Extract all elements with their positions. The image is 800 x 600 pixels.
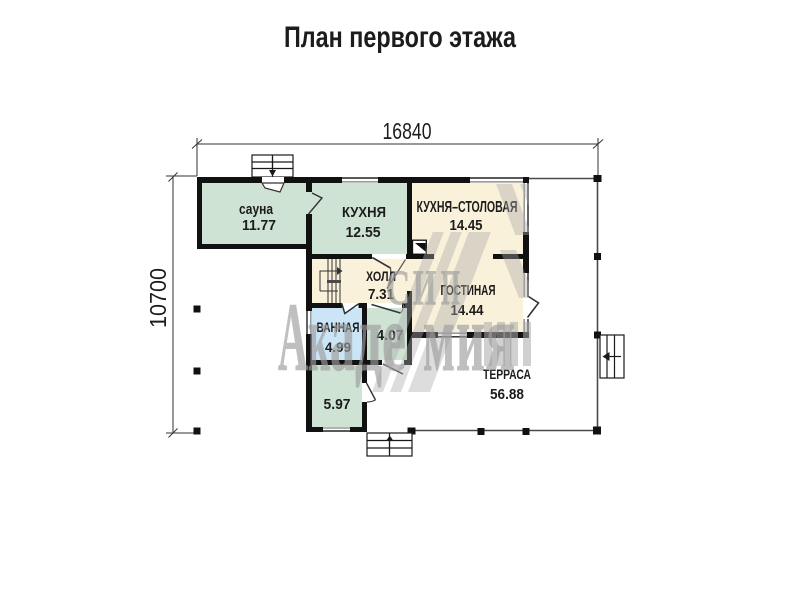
svg-text:КУХНЯ–СТОЛОВАЯ: КУХНЯ–СТОЛОВАЯ: [417, 199, 518, 216]
svg-text:я: я: [486, 284, 515, 391]
svg-text:А: А: [278, 284, 308, 391]
svg-text:е: е: [382, 284, 406, 391]
svg-text:10700: 10700: [145, 268, 171, 328]
svg-text:11.77: 11.77: [242, 217, 276, 234]
svg-text:КУХНЯ: КУХНЯ: [342, 204, 386, 221]
svg-text:16840: 16840: [383, 118, 432, 144]
svg-text:а: а: [330, 284, 355, 391]
svg-text:и: и: [456, 284, 485, 391]
svg-text:м: м: [423, 284, 455, 391]
svg-text:5.97: 5.97: [324, 396, 351, 413]
svg-text:План первого этажа: План первого этажа: [284, 21, 516, 54]
svg-text:14.45: 14.45: [450, 217, 483, 234]
svg-text:д: д: [355, 284, 382, 391]
svg-text:сауна: сауна: [239, 201, 274, 218]
svg-text:к: к: [308, 284, 330, 391]
svg-text:12.55: 12.55: [346, 224, 381, 241]
